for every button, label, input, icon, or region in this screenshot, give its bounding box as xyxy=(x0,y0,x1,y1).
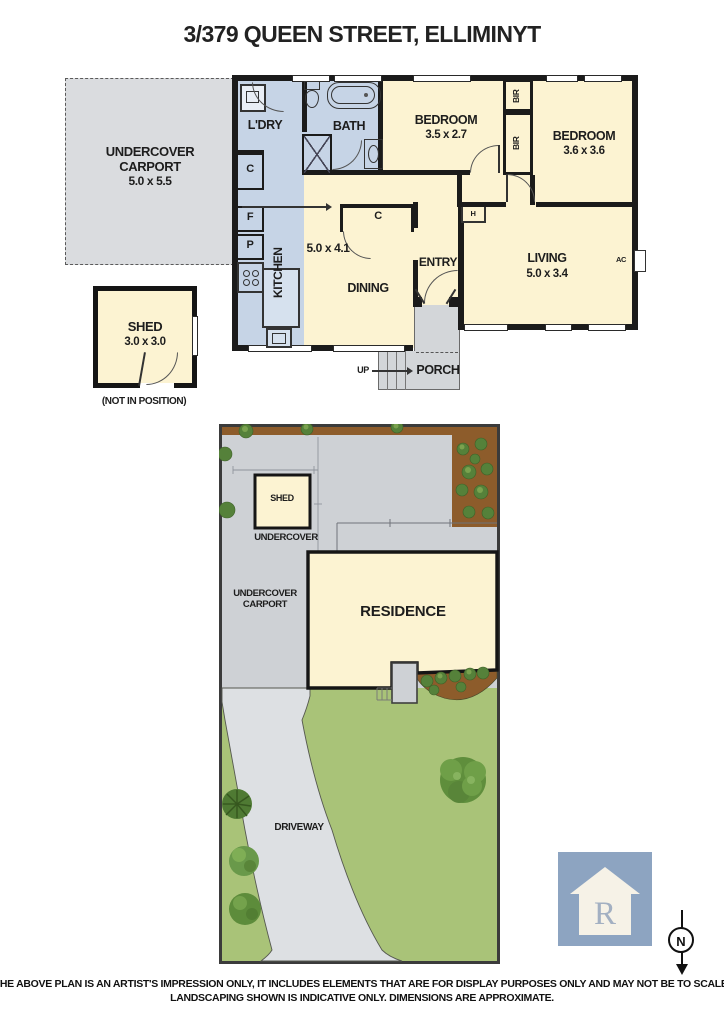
aircon-label: AC xyxy=(616,256,626,264)
page-title: 3/379 QUEEN STREET, ELLIMINYT xyxy=(183,22,540,46)
stove-cooktop xyxy=(237,262,264,293)
up-arrow-line xyxy=(372,370,408,372)
window xyxy=(545,324,572,331)
tree-shrub xyxy=(229,846,259,876)
bedroom1-dims: 3.5 x 2.7 xyxy=(425,129,466,141)
window xyxy=(334,75,382,82)
living-dims: 5.0 x 3.4 xyxy=(526,268,567,280)
window xyxy=(413,75,471,82)
pantry-label: P xyxy=(247,240,254,252)
vanity xyxy=(364,139,383,169)
porch-area xyxy=(414,305,460,390)
bathtub-inner xyxy=(331,86,375,104)
tree-large xyxy=(440,757,486,803)
site-shed-label: SHED xyxy=(270,494,293,503)
site-driveway-label: DRIVEWAY xyxy=(274,823,323,834)
shower xyxy=(302,134,332,175)
dining-label: DINING xyxy=(347,282,388,295)
toilet-tank xyxy=(304,81,320,90)
porch-label: PORCH xyxy=(416,364,459,377)
hall-arrow-line xyxy=(242,206,328,208)
bedroom2-dims: 3.6 x 3.6 xyxy=(563,145,604,157)
hall-cupboard-label: C xyxy=(374,211,382,223)
shed-dims: 3.0 x 3.0 xyxy=(124,336,165,348)
disclaimer-line2: LANDSCAPING SHOWN IS INDICATIVE ONLY. DI… xyxy=(170,993,554,1004)
bath-label: BATH xyxy=(333,120,365,133)
compass-needle-arrowhead xyxy=(676,964,688,975)
logo-letter: R xyxy=(594,896,616,932)
shed-window xyxy=(192,316,198,356)
up-arrow-head xyxy=(407,367,413,375)
tree-shrub xyxy=(229,893,261,925)
agency-logo: R xyxy=(558,852,652,946)
siteplan-ground xyxy=(219,424,500,964)
window xyxy=(464,324,508,331)
burner xyxy=(252,270,259,277)
hall-arrow-head xyxy=(326,203,332,211)
bir-label: BIR xyxy=(511,84,521,108)
shed-note: (NOT IN POSITION) xyxy=(102,397,186,408)
burner xyxy=(243,270,250,277)
laundry-label: L'DRY xyxy=(248,119,283,132)
compass-north-label: N xyxy=(676,934,685,949)
carport-label-line2: CARPORT xyxy=(119,160,180,174)
siteplan: SHED UNDERCOVER UNDERCOVER CARPORT RESID… xyxy=(219,424,500,964)
site-porch xyxy=(392,663,417,703)
bedroom2-door-leaf xyxy=(506,174,508,202)
floorplan-page: 3/379 QUEEN STREET, ELLIMINYT UNDERCOVER… xyxy=(0,0,724,1024)
entry-door-post-right xyxy=(449,297,459,307)
wall-bed2-bottom-right xyxy=(536,202,632,207)
living-label: LIVING xyxy=(527,252,566,265)
kitchen-sink xyxy=(266,328,292,348)
window xyxy=(588,324,626,331)
logo-house-body: R xyxy=(579,894,631,935)
north-compass: N xyxy=(655,905,711,980)
carport-label-line1: UNDERCOVER xyxy=(106,145,194,159)
kitchen-label: KITCHEN xyxy=(271,232,285,314)
bir-label: BIR xyxy=(511,128,521,158)
carport-dims: 5.0 x 5.5 xyxy=(128,175,171,188)
tree-palm xyxy=(222,789,252,819)
bedroom2-label: BEDROOM xyxy=(553,130,615,143)
sink-bowl xyxy=(272,333,286,344)
heater-label: H xyxy=(470,210,475,218)
wall-right xyxy=(632,75,638,330)
site-carport-label-line2: CARPORT xyxy=(243,600,287,610)
up-label: UP xyxy=(357,366,369,375)
bedroom1-label: BEDROOM xyxy=(415,114,477,127)
site-carport-label-line1: UNDERCOVER xyxy=(233,589,297,599)
burner xyxy=(243,279,250,286)
shed-label: SHED xyxy=(128,320,163,334)
bathtub xyxy=(327,82,381,109)
site-residence-label: RESIDENCE xyxy=(360,604,446,620)
cupboard-nook-label: C xyxy=(246,164,254,176)
site-undercover-label: UNDERCOVER xyxy=(254,533,318,543)
fridge-label: F xyxy=(247,212,253,224)
disclaimer-line1: THE ABOVE PLAN IS AN ARTIST'S IMPRESSION… xyxy=(0,979,724,990)
window xyxy=(584,75,622,82)
logo-house-roof xyxy=(570,867,640,894)
bedroom1-door-leaf xyxy=(498,145,500,173)
entry-label: ENTRY xyxy=(419,256,457,269)
window xyxy=(333,345,405,352)
aircon-box xyxy=(634,250,646,272)
burner xyxy=(252,279,259,286)
window xyxy=(546,75,578,82)
hall-dims: 5.0 x 4.1 xyxy=(306,242,349,255)
vanity-basin xyxy=(368,145,379,163)
bathtub-drain xyxy=(364,93,368,97)
compass-circle: N xyxy=(668,927,694,953)
porch-roof-dashed-line xyxy=(416,352,458,353)
